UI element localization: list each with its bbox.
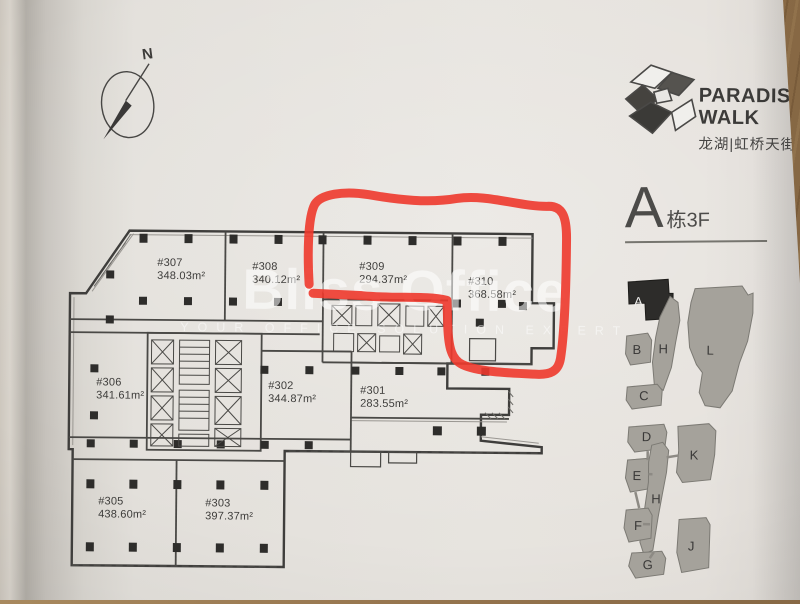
logo-line-3: 龙湖|虹桥天街 [698,133,796,155]
logo-flower-icon [625,65,696,134]
room-id: #302 [268,380,316,393]
keyplan-label-c: C [639,389,649,402]
room-id: #301 [360,385,408,398]
room-id: #303 [205,497,253,510]
keyplan-block-e [625,458,653,492]
room-area: 368.58m² [468,289,516,302]
keyplan-label-a: A [634,295,643,308]
compass-icon [97,63,158,141]
keyplan-block-j [677,517,710,572]
watermark-tagline: YOUR OFFICE SOLUTION EXPERT [175,320,635,338]
room-id: #308 [252,261,300,274]
floor-plan-drawing [0,0,800,603]
compass-north-label: N [141,47,154,61]
red-marker-annotation [0,0,800,603]
keyplan-label-l: L [707,344,714,357]
keyplan-block-c [626,384,662,409]
room-area: 341.61m² [96,389,144,402]
room-id: #306 [96,376,144,389]
keyplan-label-d: D [642,430,652,443]
room-area: 283.55m² [360,398,408,411]
room-area: 340.12m² [252,274,300,287]
keyplan-label-b: B [633,343,642,356]
building-letter: A [624,175,663,240]
room-id: #307 [157,257,205,270]
keyplan-block-g [629,551,666,578]
keyplan-block-f [624,508,652,542]
room-area: 438.60m² [98,508,146,521]
room-label-303: #303 397.37m² [205,497,253,523]
room-area: 294.37m² [359,274,407,287]
keyplan-block-b [625,333,651,365]
keyplan-label-g: G [643,558,653,571]
plan-core-shafts [151,302,444,449]
keyplan-label-e: E [632,469,641,482]
room-area: 344.87m² [268,393,316,406]
room-label-307: #307 348.03m² [157,257,205,283]
keyplan-block-h-upper [652,296,680,390]
room-label-302: #302 344.87m² [268,380,316,406]
keyplan-label-h-lower: H [651,492,661,505]
keyplan [624,279,754,579]
keyplan-block-k [676,423,716,482]
plan-dashed-edges [72,449,539,569]
room-label-309: #309 294.37m² [359,261,407,287]
keyplan-label-h-upper: H [659,342,669,355]
keyplan-block-l [687,286,753,409]
keyplan-block-a [628,279,673,320]
keyplan-label-j: J [688,540,695,553]
keyplan-label-f: F [634,519,642,532]
logo-line-2: WALK [698,107,759,131]
room-label-305: #305 438.60m² [98,495,146,521]
desk-photo: { "compass": {"label": "N"}, "logo": {"l… [0,0,800,600]
room-label-306: #306 341.61m² [96,376,144,402]
room-label-308: #308 340.12m² [252,261,300,287]
room-id: #309 [359,261,407,274]
room-label-301: #301 283.55m² [360,385,408,411]
room-id: #305 [98,495,146,508]
plan-hatching [93,234,515,419]
plan-columns [86,233,528,555]
keyplan-label-k: K [690,449,699,462]
watermark-title: Bliss Office [175,256,636,326]
room-id: #310 [468,276,516,289]
logo-line-1: PARADISE [699,85,800,109]
keyplan-block-h-lower [640,442,669,554]
keyplan-block-d [628,424,667,452]
room-area: 348.03m² [157,270,205,283]
room-label-310: #310 368.58m² [468,276,516,302]
printed-content: #307 348.03m² #308 340.12m² #309 294.37m… [0,0,800,603]
floor-plan-sheet: #307 348.03m² #308 340.12m² #309 294.37m… [0,0,800,600]
plan-inner-lines [73,233,541,449]
plan-outer-walls [68,230,555,569]
plan-interior-walls [68,230,533,569]
building-floor-heading: A栋3F [625,178,768,243]
room-area: 397.37m² [205,510,253,523]
floor-label: 栋3F [666,209,710,231]
